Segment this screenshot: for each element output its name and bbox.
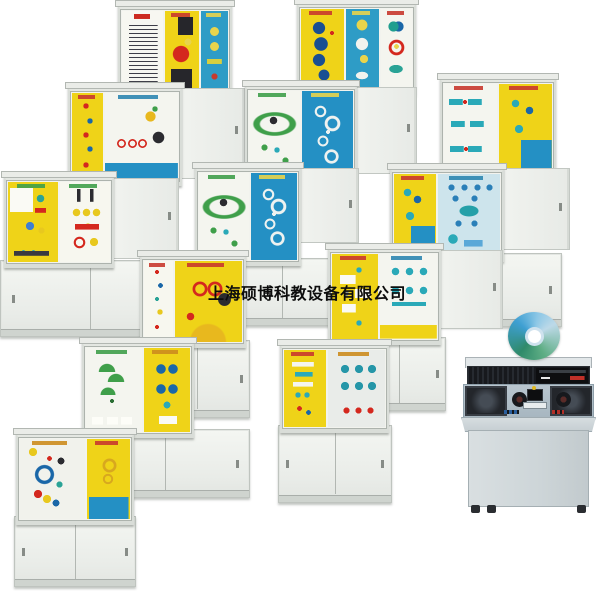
product-photo-canvas: 上海硕博科教设备有限公司 (0, 0, 600, 591)
display-panel (284, 350, 326, 427)
display-panels (444, 84, 552, 171)
console-control-surface (463, 384, 594, 419)
display-panels (284, 350, 385, 427)
display-panels (301, 9, 412, 89)
display-case (440, 77, 556, 177)
right-dial (556, 392, 571, 407)
console-foot (487, 505, 496, 513)
door-handle (286, 460, 289, 468)
console-foot (471, 505, 480, 513)
door-handle (235, 126, 238, 134)
door-handle (549, 286, 552, 294)
console-cabinet-body (468, 430, 589, 507)
center-module (527, 389, 543, 401)
display-panel (144, 348, 190, 432)
button-cluster-left (504, 410, 519, 414)
display-panel (87, 439, 130, 519)
door-handle (22, 548, 25, 556)
display-panel (201, 11, 228, 94)
display-panels (8, 182, 110, 262)
door-handle (436, 370, 439, 378)
display-panels (86, 348, 190, 432)
display-panel (60, 182, 110, 262)
door-handle (12, 295, 15, 303)
button-cluster-right (552, 410, 564, 414)
display-panel (381, 9, 412, 89)
display-panel (302, 91, 353, 177)
display-panel (8, 182, 58, 262)
watermark-text: 上海硕博科教设备有限公司 (208, 280, 406, 304)
display-panel (328, 350, 385, 427)
cabinet-sliding-door (297, 168, 359, 243)
display-panel (346, 9, 379, 89)
left-speaker (465, 386, 507, 416)
console-foot (577, 505, 586, 513)
door-handle (240, 375, 243, 383)
display-case (16, 432, 134, 525)
cabinet-sliding-door (110, 178, 179, 259)
display-panel (499, 84, 552, 171)
display-panel (72, 93, 103, 180)
cabinet-sliding-door (353, 87, 417, 174)
display-case (4, 175, 114, 268)
cabinet-cupboard (14, 516, 136, 587)
door-handle (407, 124, 410, 132)
display-panel (86, 348, 142, 432)
indicator-dot (532, 386, 536, 390)
cabinet-sliding-door (500, 168, 570, 250)
display-panel (144, 261, 173, 342)
display-case (82, 341, 194, 438)
door-handle (125, 548, 128, 556)
door-handle (493, 283, 496, 291)
console-equipment-rack (467, 366, 590, 385)
door-handle (559, 203, 562, 211)
display-panels (72, 93, 178, 180)
door-handle (349, 200, 352, 208)
cabinet-sliding-door (437, 250, 503, 329)
display-panels (199, 173, 297, 260)
cabinet-cupboard (278, 425, 392, 503)
display-panel (301, 9, 344, 89)
audio-deck (536, 368, 588, 383)
door-handle (168, 212, 171, 220)
display-panel (438, 174, 500, 256)
display-panel (199, 173, 249, 260)
cd-disc (508, 312, 560, 360)
door-handle (236, 460, 239, 468)
display-case (280, 343, 389, 433)
display-panels (20, 439, 130, 519)
control-console (461, 357, 596, 517)
door-handle (381, 460, 384, 468)
display-panel (20, 439, 85, 519)
display-panel (105, 93, 178, 180)
display-panel (251, 173, 297, 260)
tape-slot (523, 402, 547, 409)
display-panel (444, 84, 497, 171)
